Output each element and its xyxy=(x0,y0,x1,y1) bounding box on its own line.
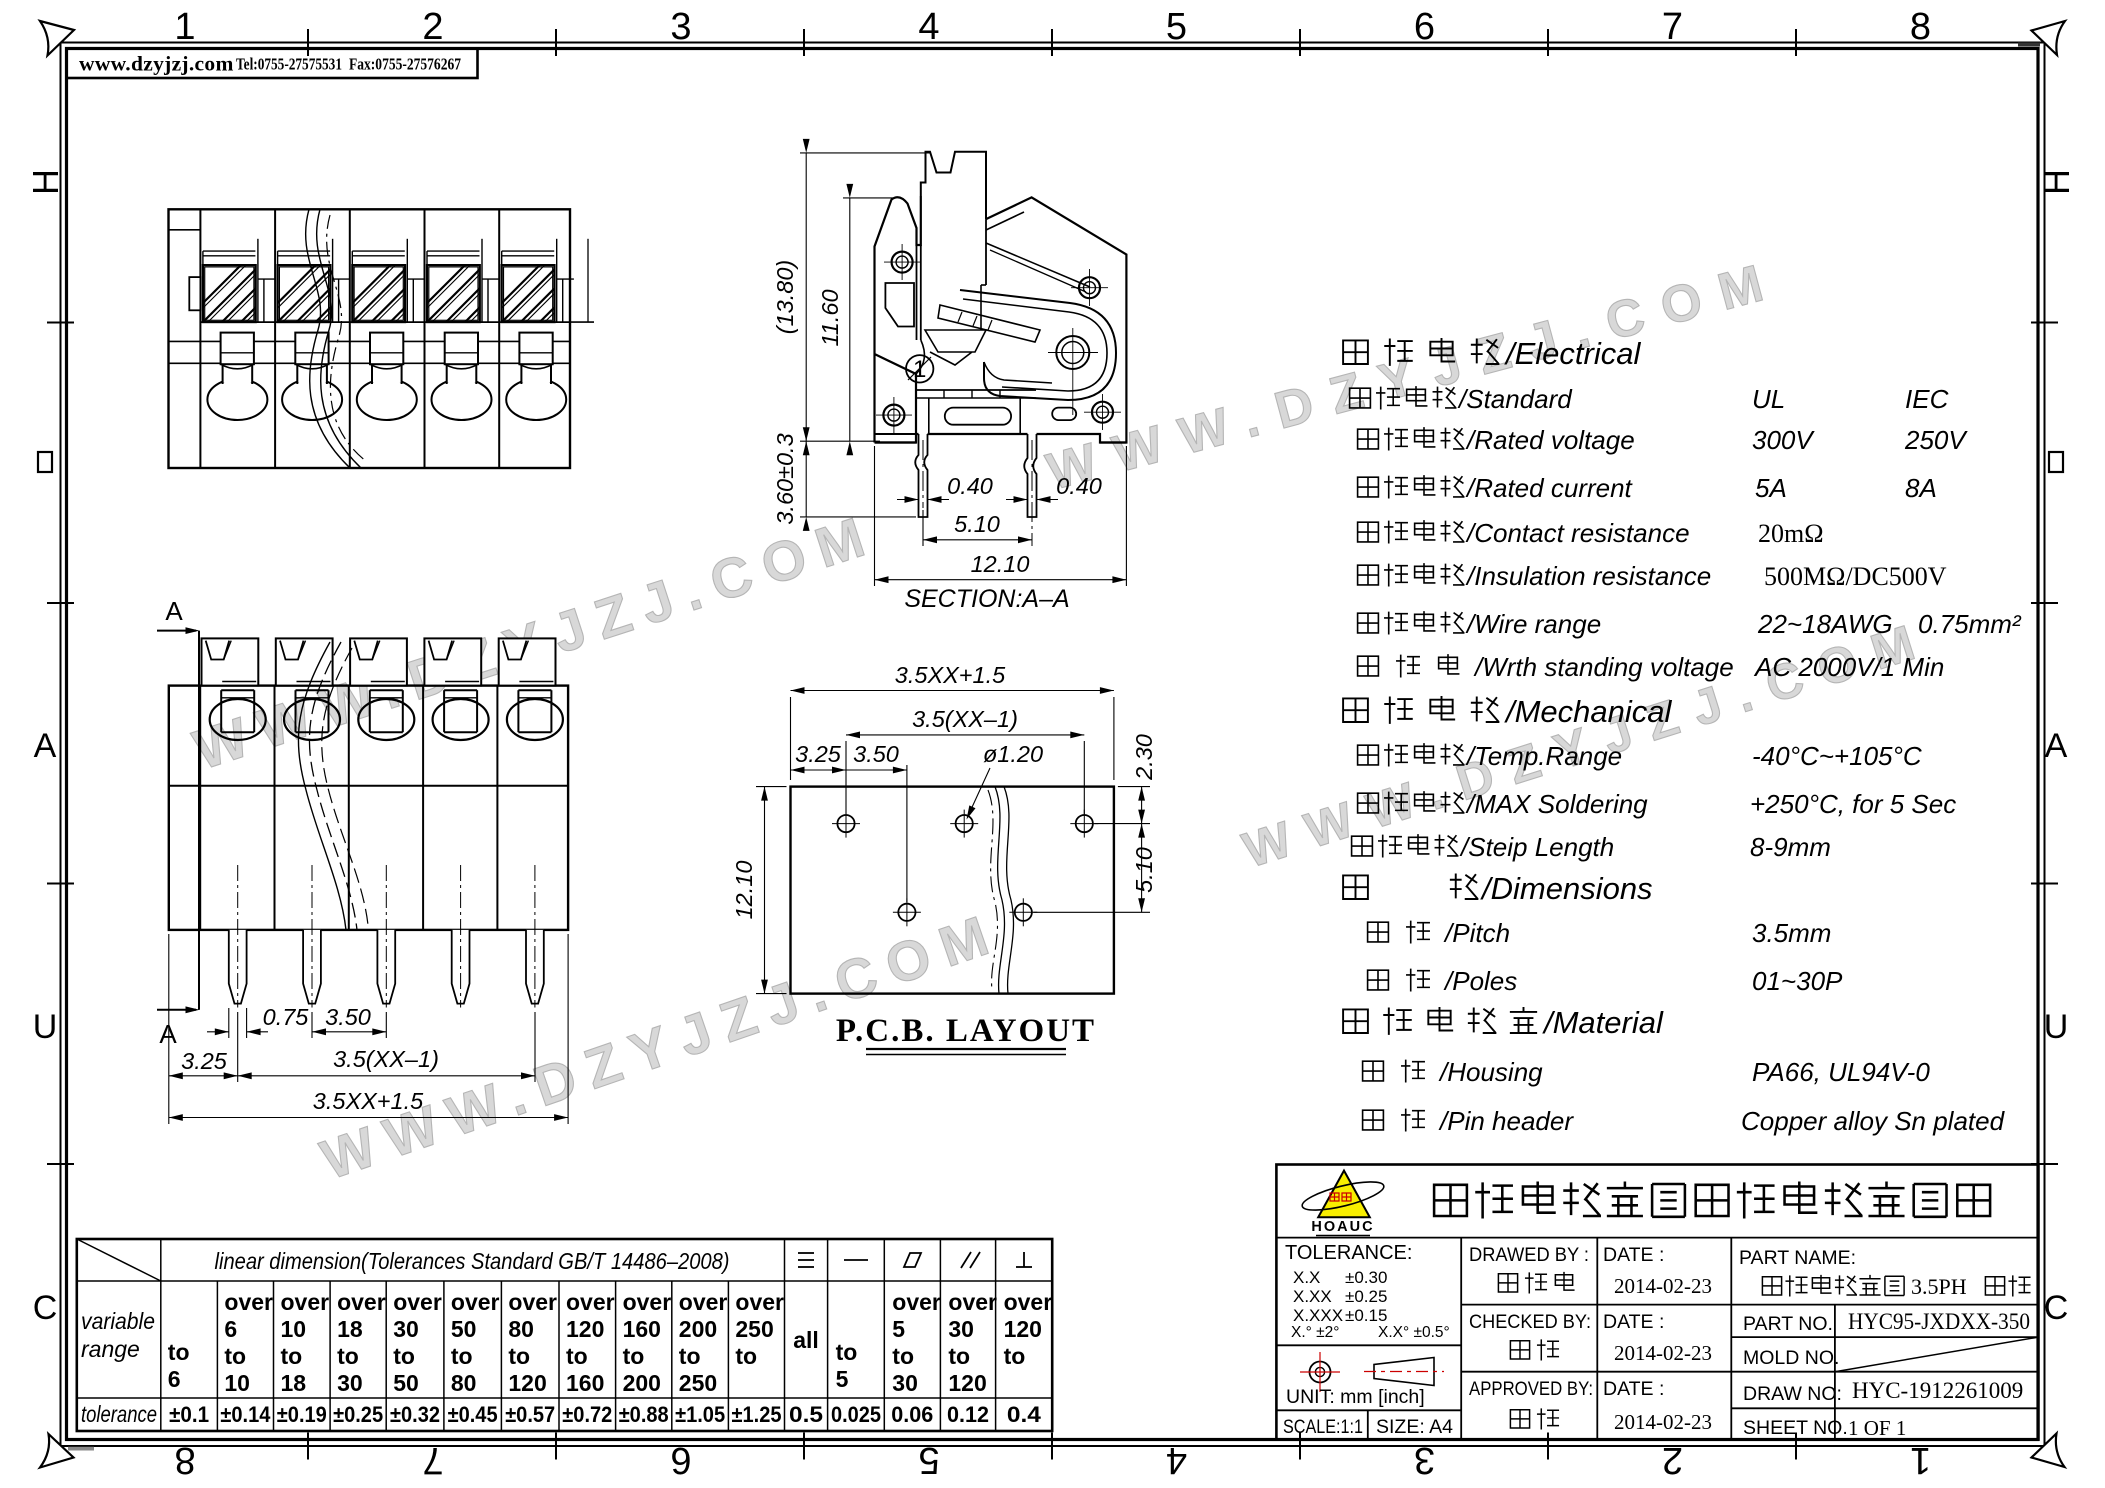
svg-text:H: H xyxy=(2036,169,2077,195)
svg-text:7: 7 xyxy=(1662,6,1683,48)
svg-text:12.10: 12.10 xyxy=(971,551,1030,577)
svg-text:±0.1: ±0.1 xyxy=(169,1402,209,1427)
svg-text:120: 120 xyxy=(508,1370,546,1396)
svg-text:/Insulation resistance: /Insulation resistance xyxy=(1465,561,1711,591)
svg-text:variable: variable xyxy=(81,1308,155,1334)
svg-text:8-9mm: 8-9mm xyxy=(1750,832,1831,862)
svg-text:all: all xyxy=(793,1327,819,1353)
svg-text:HOAUC: HOAUC xyxy=(1311,1219,1374,1235)
svg-text:30: 30 xyxy=(892,1370,918,1396)
svg-text:UNIT: mm [inch]: UNIT: mm [inch] xyxy=(1286,1386,1425,1408)
svg-text:/Pitch: /Pitch xyxy=(1443,918,1510,948)
svg-text:3.25: 3.25 xyxy=(795,741,842,767)
svg-text:5: 5 xyxy=(918,1439,939,1481)
svg-text:over: over xyxy=(892,1289,941,1315)
svg-text:MOLD NO.: MOLD NO. xyxy=(1743,1347,1839,1369)
svg-text:±1.25: ±1.25 xyxy=(732,1402,782,1427)
svg-text:tolerance: tolerance xyxy=(81,1401,157,1427)
svg-text:2014-02-23: 2014-02-23 xyxy=(1614,1274,1712,1298)
svg-text:/MAX Soldering: /MAX Soldering xyxy=(1465,789,1648,819)
svg-text:6: 6 xyxy=(224,1316,237,1342)
svg-text:U: U xyxy=(33,1008,58,1046)
svg-text:2.30: 2.30 xyxy=(1131,734,1157,781)
svg-text:2014-02-23: 2014-02-23 xyxy=(1614,1410,1712,1434)
svg-text:C: C xyxy=(2044,1289,2069,1327)
svg-text:/Housing: /Housing xyxy=(1438,1057,1543,1087)
svg-text:160: 160 xyxy=(623,1316,661,1342)
svg-text:C: C xyxy=(33,1289,58,1327)
svg-text:to: to xyxy=(393,1343,415,1369)
svg-text:5: 5 xyxy=(1166,6,1187,48)
svg-text:over: over xyxy=(679,1289,728,1315)
svg-text:www.dzyjzj.com: www.dzyjzj.com xyxy=(79,52,234,76)
svg-text:3: 3 xyxy=(1414,1439,1435,1481)
svg-text:8: 8 xyxy=(174,1439,195,1481)
svg-text:2014-02-23: 2014-02-23 xyxy=(1614,1341,1712,1365)
svg-text:±0.30: ±0.30 xyxy=(1345,1268,1387,1287)
svg-text:120: 120 xyxy=(1004,1316,1042,1342)
svg-text:H: H xyxy=(25,169,66,195)
svg-text:250: 250 xyxy=(735,1316,773,1342)
svg-text:X.X: X.X xyxy=(1293,1268,1320,1287)
svg-text:500MΩ/DC500V: 500MΩ/DC500V xyxy=(1764,562,1947,591)
svg-text:/Rated current: /Rated current xyxy=(1465,473,1634,503)
svg-text:DATE :: DATE : xyxy=(1603,1244,1664,1266)
svg-text:10: 10 xyxy=(281,1316,307,1342)
svg-text:AC 2000V/1 Min: AC 2000V/1 Min xyxy=(1753,652,1944,682)
svg-text:3.5XX+1.5: 3.5XX+1.5 xyxy=(895,662,1006,688)
svg-text:0.4: 0.4 xyxy=(1007,1402,1042,1427)
svg-text:to: to xyxy=(337,1343,359,1369)
svg-text:80: 80 xyxy=(451,1370,477,1396)
svg-text:over: over xyxy=(451,1289,500,1315)
svg-text:over: over xyxy=(337,1289,386,1315)
svg-text:/Material: /Material xyxy=(1542,1005,1664,1040)
svg-text:5: 5 xyxy=(892,1316,905,1342)
svg-text:3.5PH: 3.5PH xyxy=(1911,1274,1967,1299)
svg-text:50: 50 xyxy=(393,1370,419,1396)
svg-text:PART NO.: PART NO. xyxy=(1743,1313,1833,1335)
svg-text:(13.80): (13.80) xyxy=(772,260,798,334)
svg-text:4: 4 xyxy=(1166,1439,1187,1481)
svg-text:A: A xyxy=(34,727,57,765)
svg-text:5.10: 5.10 xyxy=(954,511,1000,537)
svg-text:to: to xyxy=(224,1343,246,1369)
svg-text:DATE :: DATE : xyxy=(1603,1378,1664,1400)
svg-text:/Contact resistance: /Contact resistance xyxy=(1465,518,1690,548)
svg-text:0.5: 0.5 xyxy=(789,1402,823,1427)
svg-text:X.XX: X.XX xyxy=(1293,1287,1332,1306)
svg-text:Tel:0755-27575531: Tel:0755-27575531 xyxy=(236,55,342,74)
svg-text:to: to xyxy=(566,1343,588,1369)
svg-text:APPROVED BY:: APPROVED BY: xyxy=(1469,1378,1593,1400)
svg-text:to: to xyxy=(508,1343,530,1369)
svg-text:over: over xyxy=(566,1289,615,1315)
svg-text:6: 6 xyxy=(168,1366,181,1392)
svg-text:to: to xyxy=(451,1343,473,1369)
svg-text:2: 2 xyxy=(1662,1439,1683,1481)
svg-text:120: 120 xyxy=(566,1316,604,1342)
svg-text:120: 120 xyxy=(948,1370,986,1396)
svg-text:IEC: IEC xyxy=(1905,384,1949,414)
svg-text:3.5(XX–1): 3.5(XX–1) xyxy=(333,1046,439,1072)
svg-text:5A: 5A xyxy=(1755,473,1787,503)
svg-text:1 OF 1: 1 OF 1 xyxy=(1848,1416,1906,1440)
svg-text:300V: 300V xyxy=(1752,425,1815,455)
svg-text:160: 160 xyxy=(566,1370,604,1396)
svg-text:-40°C~+105°C: -40°C~+105°C xyxy=(1752,741,1922,771)
svg-text:3.5(XX–1): 3.5(XX–1) xyxy=(912,706,1018,732)
svg-text:±0.88: ±0.88 xyxy=(619,1402,669,1427)
svg-text:20mΩ: 20mΩ xyxy=(1758,519,1824,548)
svg-text:over: over xyxy=(281,1289,330,1315)
svg-text:3.25: 3.25 xyxy=(181,1048,228,1074)
svg-text:01~30P: 01~30P xyxy=(1752,966,1843,996)
svg-text:0.40: 0.40 xyxy=(947,473,993,499)
svg-text:±0.25: ±0.25 xyxy=(1345,1287,1387,1306)
svg-text:3.50: 3.50 xyxy=(853,741,899,767)
svg-text:CHECKED BY:: CHECKED BY: xyxy=(1469,1311,1591,1333)
svg-text:3: 3 xyxy=(670,6,691,48)
svg-text:PART NAME:: PART NAME: xyxy=(1739,1247,1856,1269)
svg-text:/Steip Length: /Steip Length xyxy=(1459,832,1614,862)
svg-text:to: to xyxy=(836,1339,858,1365)
svg-text:/Wrth standing voltage: /Wrth standing voltage xyxy=(1473,652,1734,682)
svg-text:/Rated voltage: /Rated voltage xyxy=(1465,425,1635,455)
svg-text:±0.57: ±0.57 xyxy=(505,1402,555,1427)
svg-text:Copper alloy Sn plated: Copper alloy Sn plated xyxy=(1741,1106,2006,1136)
svg-text:±0.14: ±0.14 xyxy=(220,1402,270,1427)
svg-text:10: 10 xyxy=(224,1370,250,1396)
svg-text:SHEET NO.: SHEET NO. xyxy=(1743,1417,1848,1439)
svg-text:18: 18 xyxy=(281,1370,307,1396)
svg-text:over: over xyxy=(508,1289,557,1315)
svg-text:/Standard: /Standard xyxy=(1457,384,1573,414)
svg-text:6: 6 xyxy=(670,1439,691,1481)
svg-text:0.75mm²: 0.75mm² xyxy=(1918,609,2022,639)
svg-text:0.12: 0.12 xyxy=(947,1402,989,1427)
svg-text:/Temp.Range: /Temp.Range xyxy=(1465,741,1622,771)
svg-text:to: to xyxy=(623,1343,645,1369)
svg-text:/Electrical: /Electrical xyxy=(1504,336,1641,371)
svg-text:Fax:0755-27576267: Fax:0755-27576267 xyxy=(349,55,461,74)
svg-text:/Dimensions: /Dimensions xyxy=(1480,871,1653,906)
svg-text:linear dimension(Tolerances: linear dimension(Tolerances Standard GB/… xyxy=(215,1248,730,1274)
svg-text:7: 7 xyxy=(422,1439,443,1481)
svg-text:DRAW NO:: DRAW NO: xyxy=(1743,1383,1842,1405)
svg-text:UL: UL xyxy=(1752,384,1785,414)
svg-text:P.C.B. LAYOUT: P.C.B. LAYOUT xyxy=(836,1013,1096,1049)
svg-text:±0.72: ±0.72 xyxy=(562,1402,612,1427)
svg-text:over: over xyxy=(1004,1289,1053,1315)
svg-text:1: 1 xyxy=(1910,1439,1931,1481)
svg-text:A: A xyxy=(2045,727,2068,765)
svg-text:to: to xyxy=(281,1343,303,1369)
svg-text:5: 5 xyxy=(836,1366,849,1392)
svg-text:range: range xyxy=(81,1336,140,1362)
svg-text:80: 80 xyxy=(508,1316,534,1342)
svg-text:±0.32: ±0.32 xyxy=(390,1402,440,1427)
svg-text:±0.45: ±0.45 xyxy=(448,1402,498,1427)
svg-text:18: 18 xyxy=(337,1316,363,1342)
svg-text:5.10: 5.10 xyxy=(1131,847,1157,893)
svg-text:TOLERANCE:: TOLERANCE: xyxy=(1285,1242,1412,1264)
svg-text:SIZE: A4: SIZE: A4 xyxy=(1376,1416,1453,1438)
svg-text:+250°C, for 5 Sec: +250°C, for 5 Sec xyxy=(1750,789,1956,819)
svg-text:X.X° ±0.5°: X.X° ±0.5° xyxy=(1378,1324,1450,1341)
svg-text:A: A xyxy=(165,596,183,626)
svg-text:to: to xyxy=(948,1343,970,1369)
svg-text:over: over xyxy=(393,1289,442,1315)
svg-text:/Poles: /Poles xyxy=(1443,966,1517,996)
svg-text:0.40: 0.40 xyxy=(1056,473,1102,499)
svg-text:30: 30 xyxy=(393,1316,419,1342)
svg-text:SECTION:A–A: SECTION:A–A xyxy=(904,585,1069,613)
svg-text:PA66, UL94V-0: PA66, UL94V-0 xyxy=(1752,1057,1930,1087)
svg-text:11.60: 11.60 xyxy=(817,289,843,346)
svg-text:±0.19: ±0.19 xyxy=(277,1402,327,1427)
svg-text:/Mechanical: /Mechanical xyxy=(1504,694,1673,729)
svg-text:DATE :: DATE : xyxy=(1603,1311,1664,1333)
svg-text:to: to xyxy=(892,1343,914,1369)
svg-text:0.75: 0.75 xyxy=(263,1004,310,1030)
svg-text:250: 250 xyxy=(679,1370,717,1396)
svg-text:over: over xyxy=(623,1289,672,1315)
svg-text:200: 200 xyxy=(623,1370,661,1396)
svg-text:6: 6 xyxy=(1414,6,1435,48)
svg-text:50: 50 xyxy=(451,1316,477,1342)
svg-text:to: to xyxy=(1004,1343,1026,1369)
svg-text:over: over xyxy=(735,1289,784,1315)
svg-text:22~18AWG: 22~18AWG xyxy=(1757,609,1893,639)
svg-text:3.5mm: 3.5mm xyxy=(1752,918,1831,948)
svg-text:30: 30 xyxy=(948,1316,974,1342)
svg-text:to: to xyxy=(679,1343,701,1369)
svg-text:2: 2 xyxy=(422,6,443,48)
svg-text:3.60±0.3: 3.60±0.3 xyxy=(772,433,798,524)
svg-text:U: U xyxy=(2044,1008,2069,1046)
svg-text:±0.25: ±0.25 xyxy=(333,1402,383,1427)
svg-text:8A: 8A xyxy=(1905,473,1937,503)
svg-text:200: 200 xyxy=(679,1316,717,1342)
svg-text:SCALE:1:1: SCALE:1:1 xyxy=(1283,1416,1363,1438)
svg-text:/Pin header: /Pin header xyxy=(1438,1106,1574,1136)
svg-text:0.06: 0.06 xyxy=(891,1402,933,1427)
svg-text:HYC95-JXDXX-350: HYC95-JXDXX-350 xyxy=(1848,1309,2030,1334)
svg-text:3.5XX+1.5: 3.5XX+1.5 xyxy=(313,1088,424,1114)
svg-text:3.50: 3.50 xyxy=(325,1004,371,1030)
svg-text:/Wire range: /Wire range xyxy=(1465,609,1601,639)
svg-text:250V: 250V xyxy=(1904,425,1968,455)
svg-text:to: to xyxy=(168,1339,190,1365)
svg-text:X.° ±2°: X.° ±2° xyxy=(1291,1324,1339,1341)
svg-text:over: over xyxy=(224,1289,273,1315)
svg-text:4: 4 xyxy=(918,6,939,48)
svg-text:8: 8 xyxy=(1910,6,1931,48)
svg-text:over: over xyxy=(948,1289,997,1315)
svg-text:±0.15: ±0.15 xyxy=(1345,1306,1387,1325)
svg-text:12.10: 12.10 xyxy=(731,861,757,920)
svg-text:to: to xyxy=(735,1343,757,1369)
svg-text:±1.05: ±1.05 xyxy=(675,1402,725,1427)
svg-text:1: 1 xyxy=(174,6,195,48)
svg-text:0.025: 0.025 xyxy=(831,1402,881,1427)
svg-text:DRAWED BY :: DRAWED BY : xyxy=(1469,1244,1589,1266)
svg-text:HYC-1912261009: HYC-1912261009 xyxy=(1852,1378,2023,1403)
svg-text:30: 30 xyxy=(337,1370,363,1396)
svg-text:X.XXX: X.XXX xyxy=(1293,1306,1343,1325)
svg-text:ø1.20: ø1.20 xyxy=(983,741,1043,767)
